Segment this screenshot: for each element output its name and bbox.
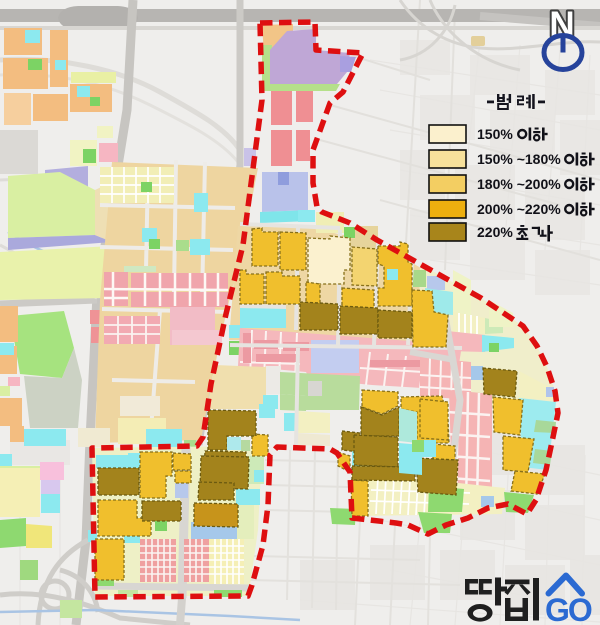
svg-text:220%: 220%: [477, 224, 513, 240]
svg-text:180% ~200%: 180% ~200%: [477, 176, 561, 192]
svg-text:GO: GO: [545, 592, 592, 625]
svg-text:150% ~180%: 150% ~180%: [477, 151, 561, 167]
svg-text:200% ~220%: 200% ~220%: [477, 201, 561, 217]
svg-text:150%: 150%: [477, 126, 513, 142]
